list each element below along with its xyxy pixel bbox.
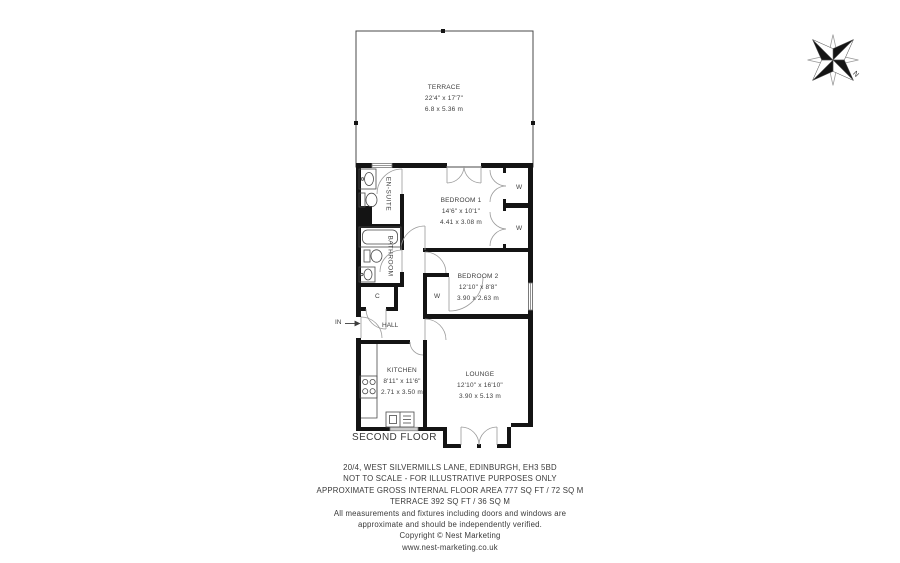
entry-in-label: IN [335,319,342,326]
disclaimer-line-2: approximate and should be independently … [0,519,900,530]
ensuite-toilet-icon [359,193,377,207]
bedroom1-label: BEDROOM 1 14'6" x 10'1" 4.41 x 3.08 m [440,196,482,228]
bathroom-toilet-icon [364,250,382,262]
lounge-label: LOUNGE 12'10" x 16'10" 3.90 x 5.13 m [457,370,503,402]
disclaimer-line-1: All measurements and fixtures including … [0,508,900,519]
kitchen-label: KITCHEN 8'11" x 11'6" 2.71 x 3.50 m [381,366,423,398]
kitchen-sink-icon [386,412,414,427]
ensuite-sink-icon [359,169,376,189]
stove-icon [360,376,377,398]
bathtub-icon [359,227,401,247]
bathroom-label: BATHROOM [387,235,394,276]
room-dims-metric: 3.90 x 5.13 m [457,392,503,403]
room-dims-imperial: 22'4" x 17'7" [425,94,463,105]
room-name: TERRACE [425,83,463,94]
website-line: www.nest-marketing.co.uk [0,542,900,553]
address-line: 20/4, WEST SILVERMILLS LANE, EDINBURGH, … [0,462,900,473]
bedroom2-label: BEDROOM 2 12'10" x 8'8" 3.90 x 2.63 m [457,272,499,304]
room-dims-imperial: 14'6" x 10'1" [440,207,482,218]
wardrobe-label-3: W [434,293,440,300]
ensuite-label: EN-SUITE [385,177,392,211]
scale-note: NOT TO SCALE - FOR ILLUSTRATIVE PURPOSES… [0,473,900,484]
terrace-area-note: TERRACE 392 SQ FT / 36 SQ M [0,496,900,507]
wardrobe-label-2: W [516,225,522,232]
compass-icon [792,19,874,101]
room-name: LOUNGE [457,370,503,381]
room-name: BEDROOM 1 [440,196,482,207]
room-dims-metric: 6.8 x 5.36 m [425,105,463,116]
area-note: APPROXIMATE GROSS INTERNAL FLOOR AREA 77… [0,485,900,496]
entry-arrow-icon [345,321,360,325]
room-dims-imperial: 12'10" x 16'10" [457,381,503,392]
copyright-line: Copyright © Nest Marketing [0,530,900,541]
hall-label: HALL [382,322,398,329]
floorplan-page: TERRACE 22'4" x 17'7" 6.8 x 5.36 m BEDRO… [0,0,900,563]
room-dims-metric: 3.90 x 2.63 m [457,294,499,305]
floor-title: SECOND FLOOR [352,432,437,443]
bathroom-sink-icon [359,267,375,282]
room-dims-metric: 4.41 x 3.08 m [440,218,482,229]
room-name: BEDROOM 2 [457,272,499,283]
cupboard-label: C [375,293,380,300]
room-dims-imperial: 12'10" x 8'8" [457,283,499,294]
wardrobe-label-1: W [516,184,522,191]
door-arcs [361,166,506,445]
room-dims-imperial: 8'11" x 11'6" [381,377,423,388]
room-dims-metric: 2.71 x 3.50 m [381,388,423,399]
footer-block: 20/4, WEST SILVERMILLS LANE, EDINBURGH, … [0,462,900,553]
room-name: KITCHEN [381,366,423,377]
terrace-label: TERRACE 22'4" x 17'7" 6.8 x 5.36 m [425,83,463,115]
